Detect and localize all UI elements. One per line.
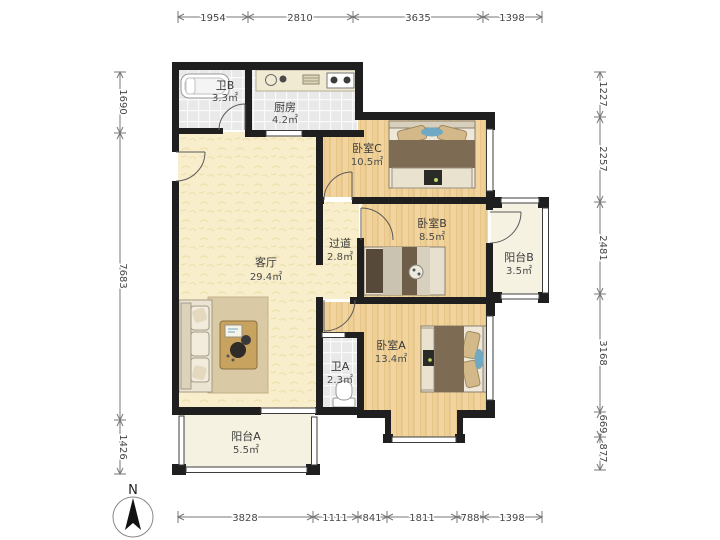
dim-bottom-3: 841 [362,513,381,524]
living-room-set [179,297,268,393]
dim-right-2: 2257 [597,146,608,171]
tv-icon [424,170,442,185]
room-area: 13.4㎡ [375,353,407,365]
dim-bottom-2: 1111 [322,513,347,524]
room-label: 客厅 [255,255,277,269]
room-label: 卧室A [376,338,406,352]
window-balcony-a-right [312,417,318,465]
room-area: 10.5㎡ [351,156,383,168]
room-label: 过道 [329,236,351,250]
hallway-floor [321,202,359,299]
room-area: 3.3㎡ [212,92,238,104]
window-balcony-b-bottom [501,294,539,299]
room-label: 卧室B [417,216,447,230]
room-label: 卫A [331,360,350,373]
bed-bedroom-c [389,121,475,188]
north-arrow: N [113,483,153,537]
dim-left-1: 1690 [117,89,128,114]
room-label: 阳台A [231,429,261,443]
dim-bottom-6: 1398 [499,513,524,524]
dim-right-4: 3168 [597,340,608,365]
sofa [179,300,212,392]
dim-right-6: 877 [597,443,608,462]
window-balcony-a-left [179,416,184,465]
room-label: 厨房 [274,101,296,114]
room-area: 2.3㎡ [327,374,353,386]
window-balcony-b-right [543,208,549,293]
dim-top-4: 1398 [499,13,524,24]
dim-right-1: 1227 [597,81,608,106]
dim-top-3: 3635 [405,13,430,24]
dim-left-2: 7683 [117,263,128,288]
bed-bedroom-a [421,326,488,392]
slider-living-balcony-a [261,408,316,414]
dim-bottom-5: 788 [460,513,479,524]
room-area: 8.5㎡ [419,231,445,243]
window-bedroom-a-bay [392,437,456,443]
dim-bottom-4: 1811 [409,513,434,524]
coffee-table [220,321,257,369]
dim-right-3: 2481 [597,235,608,260]
dimensions-left: 1690 7683 1426 [114,72,128,474]
kitchen-counter [256,70,356,91]
floorplan-canvas: 卫B 3.3㎡ 厨房 4.2㎡ 卧室C 10.5㎡ 过道 2.8㎡ 卧室B 8.… [0,0,720,540]
compass-needle-icon [125,498,141,530]
dim-right-5: 669 [597,414,608,433]
room-label: 卧室C [352,141,382,155]
room-label: 阳台B [504,250,534,264]
room-area: 3.5㎡ [506,265,532,277]
north-label: N [128,483,138,498]
dimensions-bottom: 3828 1111 841 1811 788 1398 [178,511,542,524]
slider-bath-a [322,333,345,338]
floorplan-page: 卫B 3.3㎡ 厨房 4.2㎡ 卧室C 10.5㎡ 过道 2.8㎡ 卧室B 8.… [0,0,720,540]
room-area: 5.5㎡ [233,444,259,456]
window-bedroom-c [487,129,494,191]
dim-top-1: 1954 [200,13,225,24]
window-bedroom-a [487,316,494,400]
bed-bedroom-b [364,247,445,295]
dim-left-3: 1426 [117,434,128,459]
room-area: 29.4㎡ [250,271,282,283]
dimensions-top: 1954 2810 3635 1398 [178,11,542,24]
slider-kitchen [266,131,302,137]
balcony-b-floor [491,202,543,295]
dimensions-right: 1227 2257 2481 3168 669 877 [594,72,608,470]
dim-bottom-1: 3828 [232,513,257,524]
room-area: 4.2㎡ [272,114,298,126]
room-area: 2.8㎡ [327,251,353,263]
dim-top-2: 2810 [287,13,312,24]
room-label: 卫B [216,79,235,92]
tv-icon [423,350,434,366]
window-balcony-b-top [501,198,539,203]
window-balcony-a-bottom [186,467,307,473]
